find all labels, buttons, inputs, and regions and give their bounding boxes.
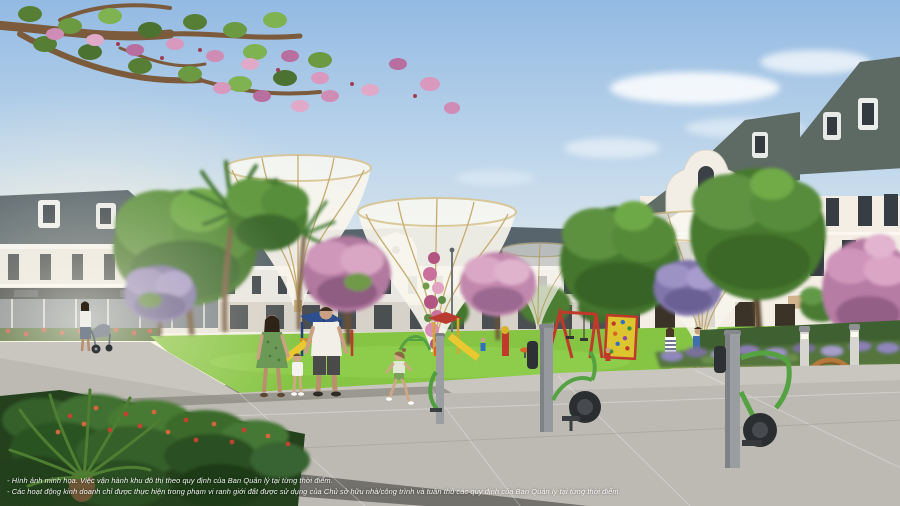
disclaimer-line-2: - Các hoạt động kinh doanh chỉ được thực… bbox=[7, 486, 621, 497]
disclaimer-text: - Hình ảnh minh họa. Việc vận hành khu đ… bbox=[7, 475, 621, 497]
climbing-wall bbox=[605, 315, 637, 359]
equipment-panel bbox=[527, 341, 538, 369]
render-image: - Hình ảnh minh họa. Việc vận hành khu đ… bbox=[0, 0, 900, 506]
scene-svg bbox=[0, 0, 900, 506]
disclaimer-line-1: - Hình ảnh minh họa. Việc vận hành khu đ… bbox=[7, 475, 621, 486]
